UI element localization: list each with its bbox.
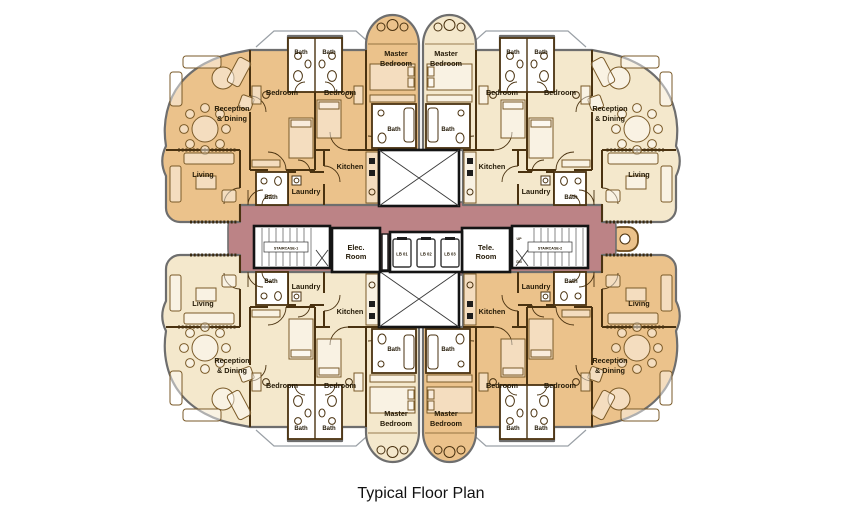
room-label-bath: Bath [387, 127, 401, 133]
room-label-bath: Bath [506, 50, 520, 56]
room-label-reception: Reception [592, 356, 627, 365]
room-label-master: Bedroom [380, 419, 413, 428]
stair-dn-label: DN [516, 260, 522, 264]
lift-label-3: LB 03 [444, 252, 456, 257]
room-label-laundry: Laundry [522, 282, 552, 291]
room-label-bath: Bath [564, 279, 578, 285]
room-label-kitchen: Kitchen [479, 307, 506, 316]
room-label-kitchen: Kitchen [337, 307, 364, 316]
room-label-master: Bedroom [430, 419, 463, 428]
room-label-bath: Bath [506, 426, 520, 432]
room-label-reception: & Dining [217, 366, 247, 375]
room-label-master: Bedroom [380, 59, 413, 68]
room-label-elec: Elec. [347, 243, 364, 252]
lift-label-1: LB 01 [396, 252, 408, 257]
room-label-bath: Bath [534, 50, 548, 56]
room-label-tele: Tele. [478, 243, 494, 252]
room-label-bedroom: Bedroom [266, 381, 299, 390]
room-label-reception: Reception [214, 104, 249, 113]
room-label-bath: Bath [441, 127, 455, 133]
stair-up-label: UP [516, 237, 522, 241]
room-label-bath: Bath [441, 347, 455, 353]
staircase-1-label: STAIRCASE-1 [274, 247, 298, 251]
room-label-bedroom: Bedroom [544, 381, 577, 390]
room-label-bedroom: Bedroom [486, 381, 519, 390]
room-label-master: Bedroom [430, 59, 463, 68]
vent-shaft [382, 234, 388, 270]
room-label-kitchen: Kitchen [337, 162, 364, 171]
plan-caption: Typical Floor Plan [357, 485, 484, 502]
room-label-bedroom: Bedroom [486, 88, 519, 97]
room-label-bath: Bath [534, 426, 548, 432]
room-label-bedroom: Bedroom [324, 381, 357, 390]
lift-label-2: LB 02 [420, 252, 432, 257]
room-label-tele: Room [476, 252, 497, 261]
room-label-master: Master [434, 409, 458, 418]
room-label-elec: Room [346, 252, 367, 261]
room-label-living: Living [628, 170, 650, 179]
room-label-reception: Reception [592, 104, 627, 113]
room-label-living: Living [192, 299, 214, 308]
room-label-bath: Bath [322, 50, 336, 56]
room-label-bath: Bath [294, 426, 308, 432]
room-label-bath: Bath [294, 50, 308, 56]
room-label-living: Living [192, 170, 214, 179]
room-label-reception: & Dining [595, 114, 625, 123]
room-label-laundry: Laundry [292, 282, 322, 291]
room-label-bath: Bath [387, 347, 401, 353]
staircase-2-label: STAIRCASE-2 [538, 247, 562, 251]
room-label-bath: Bath [322, 426, 336, 432]
room-label-bedroom: Bedroom [324, 88, 357, 97]
room-label-kitchen: Kitchen [479, 162, 506, 171]
room-label-laundry: Laundry [522, 187, 552, 196]
room-label-bedroom: Bedroom [544, 88, 577, 97]
room-label-bath: Bath [264, 279, 278, 285]
room-label-living: Living [628, 299, 650, 308]
room-label-bedroom: Bedroom [266, 88, 299, 97]
room-label-laundry: Laundry [292, 187, 322, 196]
room-label-master: Master [384, 409, 408, 418]
room-label-reception: & Dining [595, 366, 625, 375]
room-label-bath: Bath [564, 195, 578, 201]
room-label-master: Master [384, 49, 408, 58]
room-label-master: Master [434, 49, 458, 58]
corridor-end-ring [620, 234, 630, 244]
floor-plan-drawing: Bedroom Bedroom Master Bedroom Bath Bath… [0, 0, 846, 525]
room-label-bath: Bath [264, 195, 278, 201]
floor-plan-page: Bedroom Bedroom Master Bedroom Bath Bath… [0, 0, 846, 525]
apartment-bottom-right [423, 255, 680, 462]
apartment-top-right [423, 15, 680, 222]
room-label-reception: Reception [214, 356, 249, 365]
room-label-reception: & Dining [217, 114, 247, 123]
